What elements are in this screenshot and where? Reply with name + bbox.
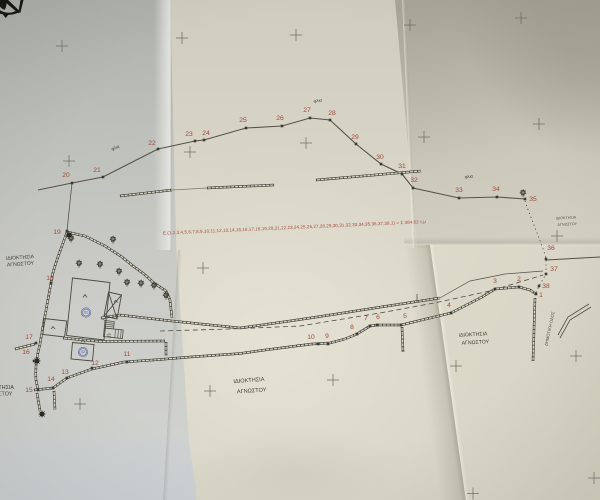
svg-text:01: 01 xyxy=(84,311,88,315)
svg-text:25: 25 xyxy=(239,117,247,124)
svg-text:12: 12 xyxy=(91,360,99,367)
svg-text:ΔΗΜΟΤΙΚΗ ΟΔΟΣ: ΔΗΜΟΤΙΚΗ ΟΔΟΣ xyxy=(543,311,555,347)
svg-text:ΙΔΙΟΚΤΗΣΙΑ: ΙΔΙΟΚΤΗΣΙΑ xyxy=(0,385,14,391)
svg-text:11: 11 xyxy=(124,351,131,358)
svg-text:32: 32 xyxy=(410,177,418,184)
svg-text:7: 7 xyxy=(364,315,368,322)
svg-text:φλια: φλια xyxy=(464,174,473,180)
svg-text:ΑΓΝΩΣΤΟΥ: ΑΓΝΩΣΤΟΥ xyxy=(461,339,489,346)
svg-text:20: 20 xyxy=(62,172,70,179)
svg-text:6: 6 xyxy=(376,314,380,321)
svg-text:ΑΓΝΩΣΤΟΥ: ΑΓΝΩΣΤΟΥ xyxy=(237,387,267,395)
svg-text:36: 36 xyxy=(547,245,555,252)
svg-text:14: 14 xyxy=(47,376,55,383)
svg-text:24: 24 xyxy=(202,130,210,137)
svg-text:18: 18 xyxy=(46,275,54,282)
svg-text:30: 30 xyxy=(376,154,384,161)
svg-text:13: 13 xyxy=(61,369,69,376)
svg-text:22: 22 xyxy=(148,140,156,147)
svg-text:35: 35 xyxy=(529,196,537,203)
svg-text:ΙΔΙΟΚΤΗΣΙΑ: ΙΔΙΟΚΤΗΣΙΑ xyxy=(556,215,577,220)
svg-text:φλια: φλια xyxy=(111,144,121,152)
svg-text:ΑΓΝΩΣΤΟΥ: ΑΓΝΩΣΤΟΥ xyxy=(557,222,577,227)
svg-text:28: 28 xyxy=(328,110,336,117)
svg-text:27: 27 xyxy=(303,107,311,114)
svg-text:3: 3 xyxy=(493,278,497,285)
svg-text:φλια: φλια xyxy=(313,97,323,103)
svg-text:4: 4 xyxy=(447,302,451,309)
svg-text:23: 23 xyxy=(185,131,193,138)
svg-text:31: 31 xyxy=(398,163,406,170)
svg-text:21: 21 xyxy=(93,167,101,174)
svg-text:2: 2 xyxy=(517,276,521,283)
svg-text:29: 29 xyxy=(351,134,359,141)
svg-text:1: 1 xyxy=(539,292,543,299)
svg-text:17: 17 xyxy=(25,334,33,341)
svg-text:ΑΓΝΩΣΤΟΥ: ΑΓΝΩΣΤΟΥ xyxy=(0,392,13,398)
svg-text:19: 19 xyxy=(53,229,61,236)
svg-text:5: 5 xyxy=(403,313,407,320)
svg-text:16: 16 xyxy=(22,349,30,356)
svg-text:8: 8 xyxy=(350,324,354,331)
svg-text:02: 02 xyxy=(81,350,85,354)
svg-text:26: 26 xyxy=(276,115,284,122)
svg-text:34: 34 xyxy=(492,186,500,193)
svg-text:ΙΔΙΟΚΤΗΣΙΑ: ΙΔΙΟΚΤΗΣΙΑ xyxy=(458,331,488,339)
svg-text:33: 33 xyxy=(455,187,463,194)
svg-text:37: 37 xyxy=(550,266,558,273)
svg-text:10: 10 xyxy=(307,334,315,341)
svg-text:ΙΔΙΟΚΤΗΣΙΑ: ΙΔΙΟΚΤΗΣΙΑ xyxy=(233,377,265,385)
svg-text:ΑΓΝΩΣΤΟΥ: ΑΓΝΩΣΤΟΥ xyxy=(7,261,35,269)
svg-text:9: 9 xyxy=(325,333,329,340)
svg-text:Ε.(1,2,3,4,5,6,7,8,9,10,11,12,: Ε.(1,2,3,4,5,6,7,8,9,10,11,12,13,14,15,1… xyxy=(163,219,427,235)
svg-text:15: 15 xyxy=(25,387,33,394)
svg-text:38: 38 xyxy=(542,283,550,290)
